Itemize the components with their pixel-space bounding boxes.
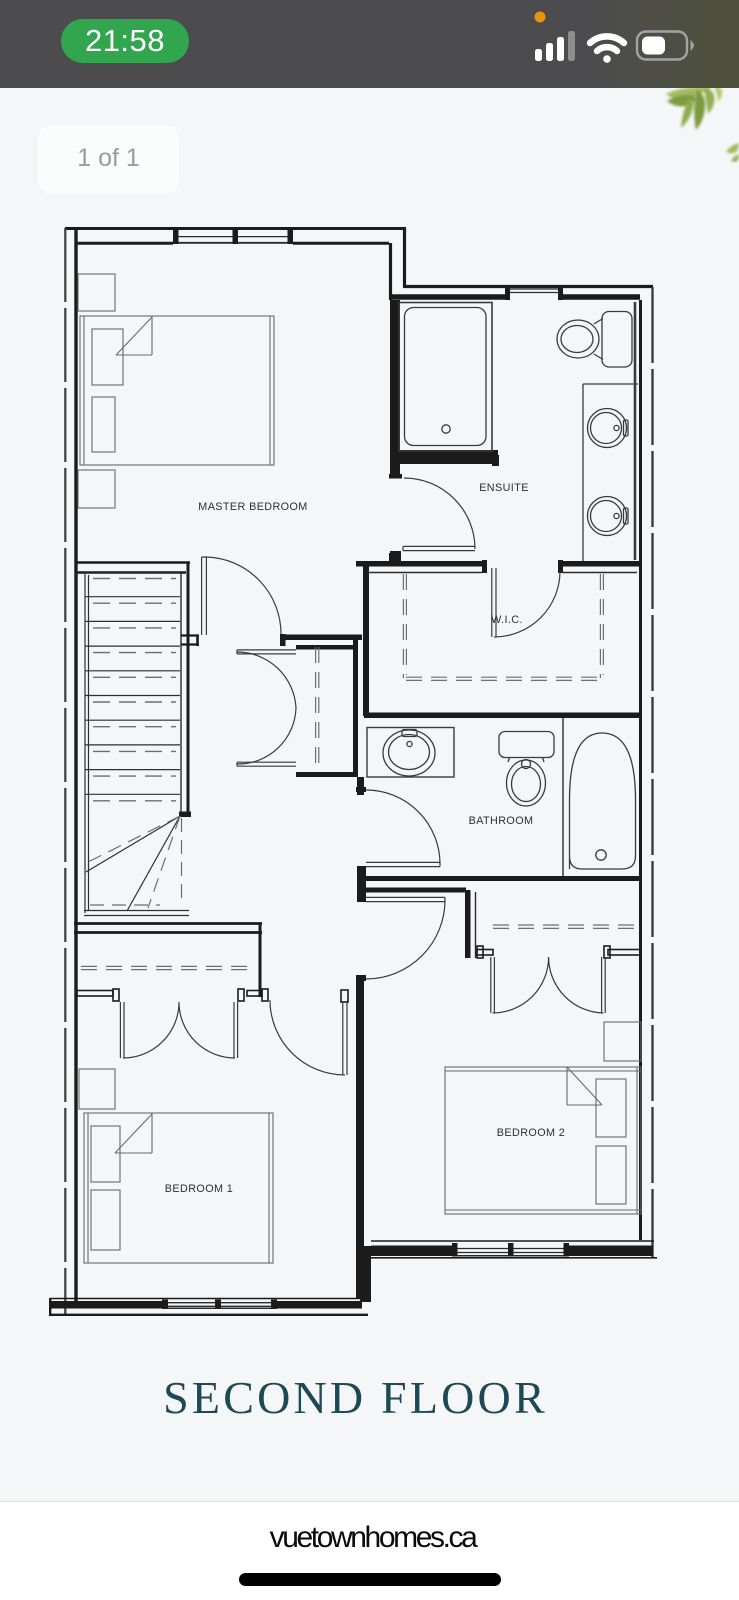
svg-text:BEDROOM 1: BEDROOM 1 (165, 1183, 233, 1195)
svg-text:W.I.C.: W.I.C. (491, 614, 523, 626)
svg-text:ENSUITE: ENSUITE (479, 482, 529, 494)
svg-text:BATHROOM: BATHROOM (469, 815, 534, 827)
svg-text:BEDROOM 2: BEDROOM 2 (497, 1127, 565, 1139)
svg-text:MASTER BEDROOM: MASTER BEDROOM (198, 501, 307, 513)
